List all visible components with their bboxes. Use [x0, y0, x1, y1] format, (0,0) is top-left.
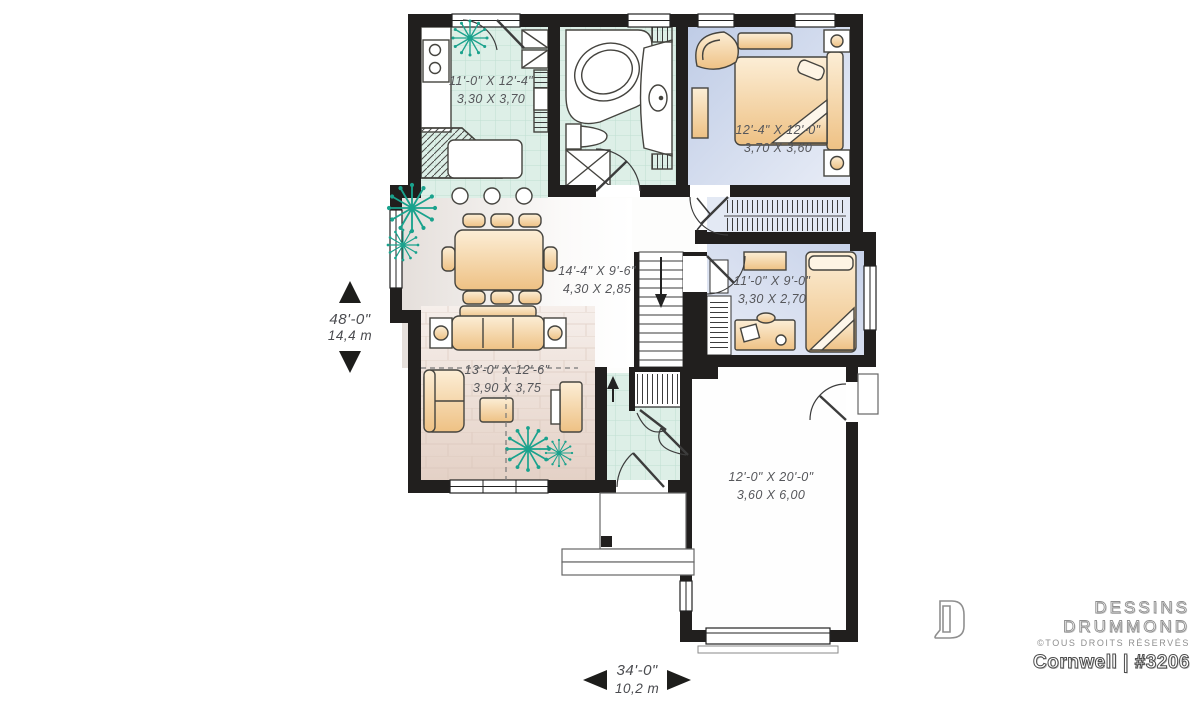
- living-imperial: 13'-0" X 12'-6": [465, 363, 550, 377]
- master-imperial: 12'-4" X 12'-0": [736, 123, 821, 137]
- brand-name-line2: DRUMMOND: [1063, 617, 1190, 636]
- dining-dimensions-label: 14'-4" X 9'-6" 4,30 X 2,85: [558, 262, 636, 298]
- floorplan-page: 11'-0" X 12'-4" 3,30 X 3,70 12'-4" X 12'…: [0, 0, 1200, 711]
- living-armchair: [424, 370, 464, 432]
- width-imperial: 34'-0": [617, 662, 658, 680]
- height-metric: 14,4 m: [328, 328, 372, 343]
- master-window-right: [795, 14, 835, 27]
- living-metric: 3,90 X 3,75: [473, 381, 541, 395]
- entry-closet: [633, 371, 685, 407]
- garage-metric: 3,60 X 6,00: [737, 488, 805, 502]
- bedroom2-imperial: 11'-0" X 9'-0": [734, 274, 811, 288]
- kitchen-dimensions-label: 11'-0" X 12'-4" 3,30 X 3,70: [449, 72, 533, 108]
- kitchen-imperial: 11'-0" X 12'-4": [449, 74, 533, 88]
- master-metric: 3,70 X 3,60: [744, 141, 812, 155]
- dining-metric: 4,30 X 2,85: [563, 282, 631, 296]
- bedroom2-dresser: [744, 252, 786, 270]
- brand-name-line1: DESSINS: [1063, 598, 1190, 617]
- corner-shower: [566, 150, 610, 186]
- front-porch: [562, 493, 694, 575]
- living-sofa: [452, 306, 544, 350]
- height-imperial: 48'-0": [329, 311, 370, 328]
- side-stoop: [858, 374, 878, 414]
- height-dimension-marker: 48'-0" 14,4 m: [310, 281, 390, 373]
- bedroom2-bed: [806, 252, 856, 352]
- plan-name-and-number: Cornwell | #3206: [930, 652, 1190, 674]
- kitchen-metric: 3,30 X 3,70: [457, 92, 525, 106]
- arrow-up-icon: [339, 281, 361, 303]
- master-bench: [738, 33, 792, 49]
- bathroom-vanity: [641, 27, 673, 169]
- garage-dimensions-label: 12'-0" X 20'-0" 3,60 X 6,00: [729, 468, 814, 504]
- garage-imperial: 12'-0" X 20'-0": [729, 470, 814, 484]
- master-closet: [724, 200, 846, 231]
- living-dimensions-label: 13'-0" X 12'-6" 3,90 X 3,75: [465, 361, 550, 397]
- master-bedroom-dimensions-label: 12'-4" X 12'-0" 3,70 X 3,60: [736, 121, 821, 157]
- dining-imperial: 14'-4" X 9'-6": [558, 264, 636, 278]
- arrow-down-icon: [339, 351, 361, 373]
- drummond-logo-icon: [930, 598, 966, 640]
- bedroom2-dimensions-label: 11'-0" X 9'-0" 3,30 X 2,70: [734, 272, 811, 308]
- width-dimension-marker: 34'-0" 10,2 m: [583, 662, 691, 698]
- coffee-table: [480, 398, 513, 422]
- master-window-left: [698, 14, 734, 27]
- garage-window: [680, 581, 692, 611]
- arrow-left-icon: [583, 670, 607, 690]
- porch-post: [601, 536, 612, 547]
- bedroom2-closet: [707, 260, 731, 355]
- bathroom-window: [628, 14, 670, 27]
- brand-rights: ©TOUS DROITS RÉSERVÉS: [930, 638, 1190, 648]
- arrow-right-icon: [667, 670, 691, 690]
- living-window: [450, 480, 548, 493]
- width-metric: 10,2 m: [615, 680, 659, 698]
- bedroom2-metric: 3,30 X 2,70: [738, 292, 806, 306]
- garage-door: [698, 628, 838, 653]
- branding-block: DESSINS DRUMMOND ©TOUS DROITS RÉSERVÉS C…: [930, 598, 1190, 674]
- stairs: [634, 252, 683, 367]
- bedroom2-window: [864, 266, 876, 330]
- master-dresser: [692, 88, 708, 138]
- tv-unit: [551, 382, 582, 432]
